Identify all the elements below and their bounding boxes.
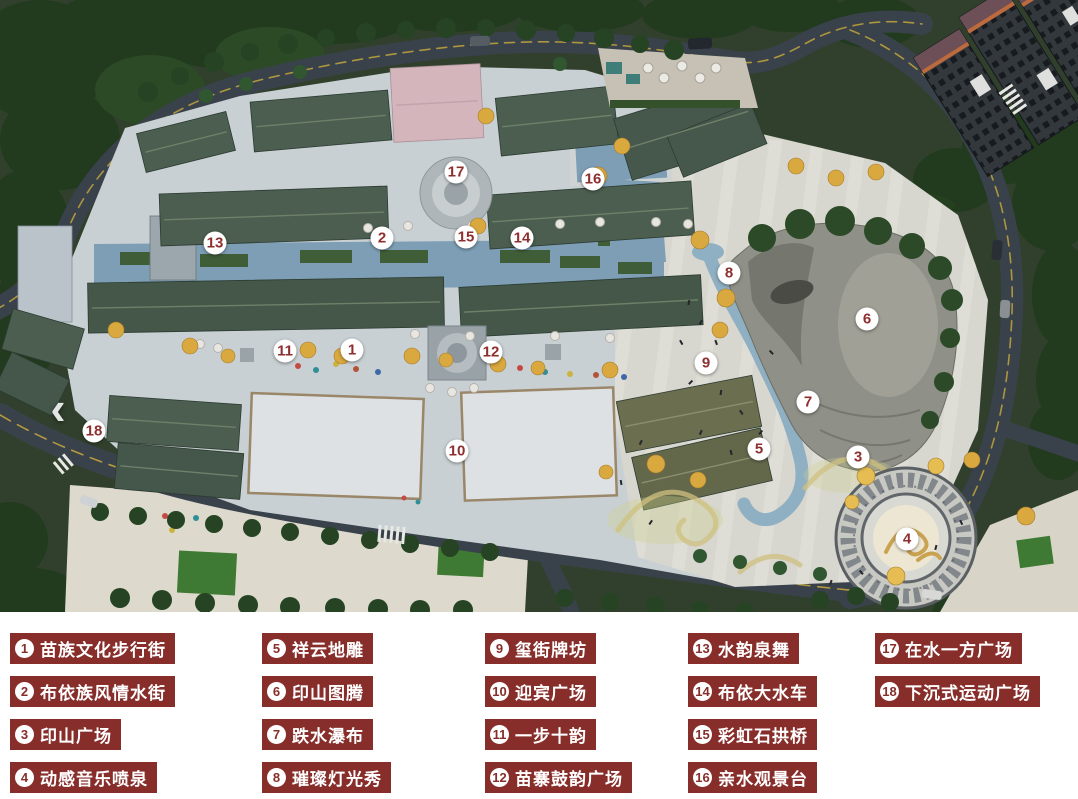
- legend-item-16: 16亲水观景台: [688, 762, 817, 793]
- legend-item-number: 7: [267, 725, 286, 744]
- legend-item-number: 4: [15, 768, 34, 787]
- legend-item-label: 彩虹石拱桥: [718, 722, 808, 747]
- legend-item-label: 水韵泉舞: [718, 636, 790, 661]
- legend-item-label: 印山广场: [40, 722, 112, 747]
- legend-item-label: 印山图腾: [292, 679, 364, 704]
- legend-item-label: 亲水观景台: [718, 765, 808, 790]
- legend-item-12: 12苗寨鼓韵广场: [485, 762, 632, 793]
- legend-item-number: 6: [267, 682, 286, 701]
- legend-item-label: 布依族风情水街: [40, 679, 166, 704]
- legend-item-5: 5祥云地雕: [262, 633, 373, 664]
- legend-item-label: 苗寨鼓韵广场: [515, 765, 623, 790]
- legend-item-2: 2布依族风情水街: [10, 676, 175, 707]
- legend-item-15: 15彩虹石拱桥: [688, 719, 817, 750]
- map-marker-4: 4: [896, 528, 919, 551]
- legend-item-label: 动感音乐喷泉: [40, 765, 148, 790]
- legend-item-7: 7跌水瀑布: [262, 719, 373, 750]
- legend-item-8: 8璀璨灯光秀: [262, 762, 391, 793]
- page: ‹ 123456789101112131415161718 1苗族文化步行街2布…: [0, 0, 1078, 799]
- legend-item-label: 下沉式运动广场: [905, 679, 1031, 704]
- legend-item-label: 迎宾广场: [515, 679, 587, 704]
- map-marker-14: 14: [511, 227, 534, 250]
- legend-item-number: 14: [693, 682, 712, 701]
- legend-item-number: 15: [693, 725, 712, 744]
- legend-column-4: 13水韵泉舞14布依大水车15彩虹石拱桥16亲水观景台: [688, 633, 817, 793]
- map-marker-12: 12: [480, 341, 503, 364]
- map-marker-6: 6: [856, 308, 879, 331]
- legend-item-number: 2: [15, 682, 34, 701]
- legend-item-label: 一步十韵: [515, 722, 587, 747]
- legend-item-number: 17: [880, 639, 899, 658]
- site-plan-image: ‹ 123456789101112131415161718: [0, 0, 1078, 612]
- legend-item-number: 16: [693, 768, 712, 787]
- map-marker-7: 7: [797, 391, 820, 414]
- legend-item-number: 8: [267, 768, 286, 787]
- legend-item-17: 17在水一方广场: [875, 633, 1022, 664]
- legend-column-2: 5祥云地雕6印山图腾7跌水瀑布8璀璨灯光秀: [262, 633, 391, 793]
- legend-item-label: 在水一方广场: [905, 636, 1013, 661]
- legend-item-9: 9玺街牌坊: [485, 633, 596, 664]
- legend-item-label: 布依大水车: [718, 679, 808, 704]
- map-marker-15: 15: [455, 226, 478, 249]
- legend-item-4: 4动感音乐喷泉: [10, 762, 157, 793]
- map-marker-16: 16: [582, 168, 605, 191]
- legend-item-number: 5: [267, 639, 286, 658]
- map-marker-10: 10: [446, 440, 469, 463]
- legend-item-number: 18: [880, 682, 899, 701]
- legend-item-label: 祥云地雕: [292, 636, 364, 661]
- legend: 1苗族文化步行街2布依族风情水街3印山广场4动感音乐喷泉5祥云地雕6印山图腾7跌…: [0, 612, 1078, 799]
- legend-item-number: 11: [490, 725, 509, 744]
- legend-item-number: 13: [693, 639, 712, 658]
- map-marker-9: 9: [695, 352, 718, 375]
- legend-column-5: 17在水一方广场18下沉式运动广场: [875, 633, 1040, 707]
- map-marker-18: 18: [83, 420, 106, 443]
- map-marker-8: 8: [718, 262, 741, 285]
- legend-item-label: 璀璨灯光秀: [292, 765, 382, 790]
- legend-item-number: 10: [490, 682, 509, 701]
- legend-item-number: 12: [490, 768, 509, 787]
- legend-item-number: 9: [490, 639, 509, 658]
- legend-item-18: 18下沉式运动广场: [875, 676, 1040, 707]
- map-marker-3: 3: [847, 446, 870, 469]
- map-marker-5: 5: [748, 438, 771, 461]
- legend-item-label: 跌水瀑布: [292, 722, 364, 747]
- legend-item-14: 14布依大水车: [688, 676, 817, 707]
- map-marker-11: 11: [274, 340, 297, 363]
- legend-item-10: 10迎宾广场: [485, 676, 596, 707]
- legend-item-3: 3印山广场: [10, 719, 121, 750]
- map-marker-17: 17: [445, 161, 468, 184]
- carousel-prev-button[interactable]: ‹: [50, 385, 65, 431]
- legend-item-11: 11一步十韵: [485, 719, 596, 750]
- map-marker-13: 13: [204, 232, 227, 255]
- legend-item-number: 3: [15, 725, 34, 744]
- map-marker-2: 2: [371, 227, 394, 250]
- map-marker-1: 1: [341, 339, 364, 362]
- legend-column-3: 9玺街牌坊10迎宾广场11一步十韵12苗寨鼓韵广场: [485, 633, 632, 793]
- legend-item-13: 13水韵泉舞: [688, 633, 799, 664]
- legend-item-label: 玺街牌坊: [515, 636, 587, 661]
- legend-column-1: 1苗族文化步行街2布依族风情水街3印山广场4动感音乐喷泉: [10, 633, 175, 793]
- site-plan-render: [0, 0, 1078, 612]
- legend-item-number: 1: [15, 639, 34, 658]
- legend-item-6: 6印山图腾: [262, 676, 373, 707]
- legend-item-1: 1苗族文化步行街: [10, 633, 175, 664]
- legend-item-label: 苗族文化步行街: [40, 636, 166, 661]
